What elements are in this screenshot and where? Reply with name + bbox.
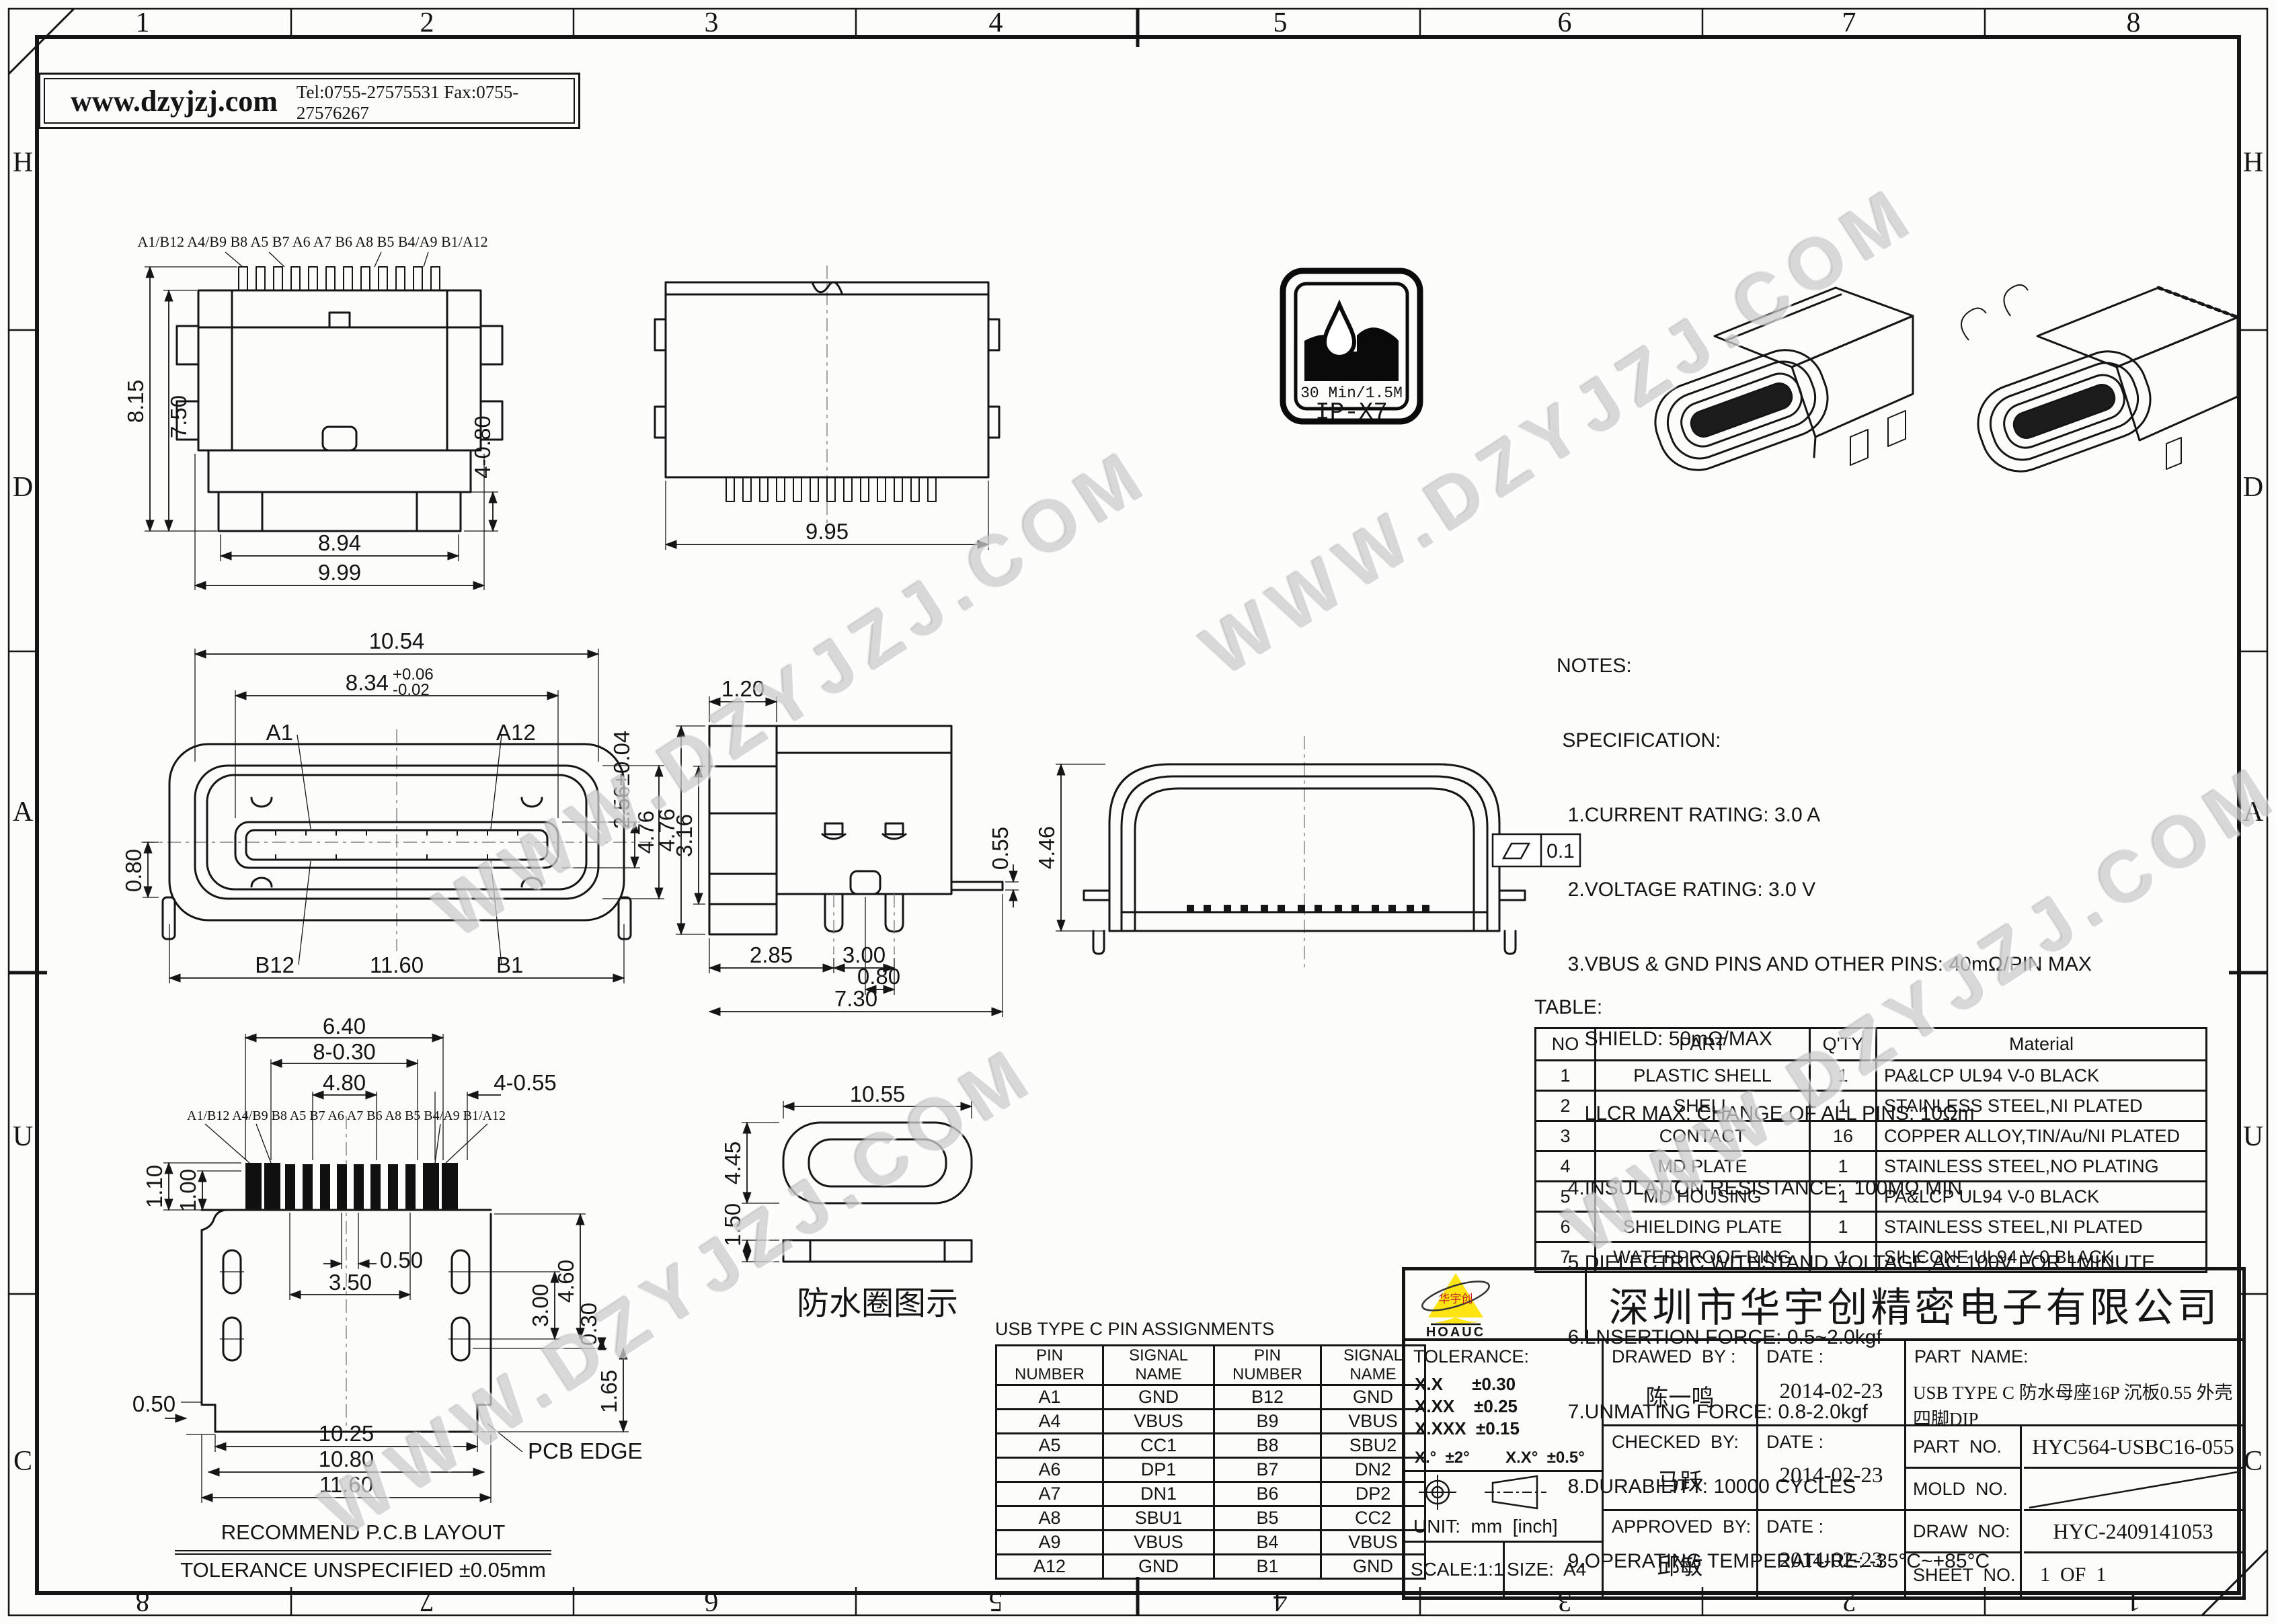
dim: 3.16	[672, 814, 697, 857]
website: www.dzyjzj.com	[71, 84, 278, 118]
view-face: A1 A12 B12 B1 10.54 8.34 +0.06 -0.02 11.…	[128, 628, 666, 995]
cell: B5	[1214, 1506, 1321, 1531]
drawing-sheet: 1 2 3 4 5 6 7 8 8 7 6 5 4 3 2 1 H D A U …	[0, 0, 2276, 1624]
front-pin-labels: A1/B12 A4/B9 B8 A5 B7 A6 A7 B6 A8 B5 B4/…	[137, 233, 487, 250]
view-side: 1.20 4.76 3.16 0.55 2.85 3.00 0.80 7.30	[662, 672, 1029, 1018]
view-pcb-bottom-dims: 10.25 10.80 11.60	[124, 1425, 709, 1512]
approved-cell: APPROVED BY: 邱敏	[1604, 1511, 1758, 1596]
zone-col: 1	[136, 7, 150, 39]
logo-cn-text: 华宇创	[1439, 1293, 1473, 1305]
part-name-label: PART NAME:	[1906, 1341, 2242, 1367]
dim: 4-0.80	[470, 415, 495, 479]
pin-a12: A12	[496, 720, 536, 745]
rear-contacts	[1187, 905, 1429, 912]
sheet-no-value: 1 OF 1	[2024, 1553, 2242, 1596]
cell: GND	[1103, 1385, 1214, 1410]
dim: 9.99	[318, 560, 361, 585]
dim: 10.55	[850, 1082, 906, 1106]
header-box: www.dzyjzj.com Tel:0755-27575531 Fax:075…	[38, 73, 580, 129]
cell: CC1	[1103, 1434, 1214, 1458]
table-row: A8SBU1 B5CC2	[996, 1506, 1425, 1531]
tel-fax: Tel:0755-27575531 Fax:0755-27576267	[297, 78, 574, 124]
zone-col: 7	[1842, 7, 1856, 39]
dim: 4.80	[323, 1070, 366, 1095]
cell: STAINLESS STEEL,NI PLATED	[1877, 1091, 2207, 1121]
zone-row: H	[2243, 147, 2263, 179]
tolerance-cell: TOLERANCE: X.X ±0.30 X.XX ±0.25 X.XXX ±0…	[1405, 1341, 1604, 1472]
cell: 3	[1536, 1121, 1596, 1151]
ring-caption: 防水圈图示	[797, 1286, 958, 1322]
dim-tol-minus: -0.02	[393, 681, 430, 699]
view-pcb: 6.40 8-0.30 4.80 4-0.55 A1/B12 A4/B9 B8 …	[124, 1028, 709, 1438]
dim: 11.60	[319, 1472, 373, 1497]
table-row: A7DN1 B6DP2	[996, 1482, 1425, 1506]
cell: PA&LCP UL94 V-0 BLACK	[1877, 1182, 2207, 1212]
col-header: NO	[1536, 1028, 1596, 1061]
tolerance-angles: X.° ±2° X.X° ±0.5°	[1405, 1439, 1602, 1467]
projection-symbol-icon	[1405, 1472, 1604, 1512]
view-rear: 4.46 0.1	[1029, 723, 1587, 988]
dim: 8.34	[346, 670, 389, 695]
ipx7-code: IP-X7	[1315, 399, 1388, 426]
dim: 0.80	[857, 964, 900, 989]
part-name-value: USB TYPE C 防水母座16P 沉板0.55 外壳四脚DIP	[1906, 1367, 2242, 1430]
cell: SBU1	[1103, 1506, 1214, 1531]
notes-line: 1.CURRENT RATING: 3.0 A	[1557, 803, 2269, 827]
tolerance-line: X.XXX ±0.15	[1405, 1417, 1602, 1439]
col-header: Q'TY	[1810, 1028, 1877, 1061]
cell: GND	[1103, 1555, 1214, 1579]
table-row: 1 PLASTIC SHELL 1 PA&LCP UL94 V-0 BLACK	[1536, 1061, 2207, 1091]
drawed-name: 陈一鸣	[1604, 1379, 1756, 1412]
cell: DP1	[1103, 1458, 1214, 1482]
pcb-caption: RECOMMEND P.C.B LAYOUT	[175, 1520, 551, 1555]
table-row: 5 MD HOUSING 1 PA&LCP UL94 V-0 BLACK	[1536, 1182, 2207, 1212]
zone-col-bottom: 5	[989, 1585, 1003, 1617]
cell: DN1	[1103, 1482, 1214, 1506]
pin-table: PIN NUMBER SIGNAL NAME PIN NUMBER SIGNAL…	[995, 1344, 1426, 1580]
dim: 3.50	[329, 1270, 372, 1295]
cell: B12	[1214, 1385, 1321, 1410]
zone-col-bottom: 7	[420, 1585, 434, 1617]
cell: A1	[996, 1385, 1103, 1410]
dim: 0.50	[380, 1248, 423, 1272]
dim: 8.94	[318, 530, 361, 555]
tolerance-line: X.X ±0.30	[1405, 1367, 1602, 1395]
size-label: SIZE: A4	[1507, 1543, 1604, 1596]
cell: A6	[996, 1458, 1103, 1482]
cell: A8	[996, 1506, 1103, 1531]
dim: 4.46	[1034, 826, 1059, 869]
dim: 2.56±0.04	[609, 731, 634, 829]
dim: 7.50	[166, 395, 191, 438]
zone-row: C	[13, 1445, 32, 1477]
ring-body	[783, 1123, 972, 1262]
tolerance-label: TOLERANCE:	[1405, 1341, 1602, 1367]
dim: 10.80	[319, 1447, 375, 1471]
cell: SHIELDING PLATE	[1596, 1212, 1810, 1242]
dim: 2.85	[750, 942, 793, 967]
cell: 1	[1810, 1091, 1877, 1121]
approved-date: 2014-02-23	[1758, 1548, 1904, 1573]
draw-no-label: DRAW NO:	[1906, 1511, 2022, 1553]
drawed-label: DRAWED BY :	[1604, 1341, 1756, 1367]
cell: 1	[1810, 1212, 1877, 1242]
part-no-value: HYC564-USBC16-055	[2024, 1426, 2242, 1469]
cell: 1	[1810, 1182, 1877, 1212]
cell: B7	[1214, 1458, 1321, 1482]
part-name-cell: PART NAME: USB TYPE C 防水母座16P 沉板0.55 外壳四…	[1906, 1341, 2242, 1426]
cell: A9	[996, 1531, 1103, 1555]
zone-col-bottom: 8	[136, 1585, 150, 1617]
table-row: 2 SHELL 1 STAINLESS STEEL,NI PLATED	[1536, 1091, 2207, 1121]
cell: B6	[1214, 1482, 1321, 1506]
date-label: DATE :	[1758, 1341, 1904, 1367]
checked-name: 马跃	[1604, 1463, 1756, 1496]
dim: 6.40	[323, 1014, 366, 1039]
dim: 10.54	[369, 628, 425, 653]
pin-a1: A1	[266, 720, 293, 745]
mold-no-value	[2024, 1469, 2242, 1511]
draw-no-value: HYC-2409141053	[2024, 1511, 2242, 1553]
cell: A12	[996, 1555, 1103, 1579]
cell: PA&LCP UL94 V-0 BLACK	[1877, 1061, 2207, 1091]
pcb-pads	[245, 1163, 458, 1210]
date-cell: DATE : 2014-02-23	[1758, 1511, 1906, 1596]
dim: 11.60	[370, 952, 424, 977]
cell: 1	[1536, 1061, 1596, 1091]
water-drop-icon	[1304, 304, 1399, 381]
cell: MD PLATE	[1596, 1151, 1810, 1182]
dim: 10.25	[319, 1421, 375, 1446]
cell: SHELL	[1596, 1091, 1810, 1121]
table-row: 3 CONTACT 16 COPPER ALLOY,TIN/Au/NI PLAT…	[1536, 1121, 2207, 1151]
parts-table-title: TABLE:	[1534, 996, 1602, 1019]
iso-connector-front	[1645, 288, 1913, 481]
zone-col: 2	[420, 7, 434, 39]
zone-col: 4	[989, 7, 1003, 39]
cell: A7	[996, 1482, 1103, 1506]
cell: COPPER ALLOY,TIN/Au/NI PLATED	[1877, 1121, 2207, 1151]
pin-b12: B12	[255, 952, 295, 977]
table-row: 6 SHIELDING PLATE 1 STAINLESS STEEL,NI P…	[1536, 1212, 2207, 1242]
iso-renders	[1614, 235, 2276, 585]
zone-col-bottom: 6	[705, 1585, 719, 1617]
table-row: A1GND B12GND	[996, 1385, 1425, 1410]
approved-name: 邱敏	[1604, 1548, 1756, 1581]
zone-row: U	[13, 1121, 33, 1153]
pin-table-title: USB TYPE C PIN ASSIGNMENTS	[995, 1319, 1274, 1340]
date-cell: DATE : 2014-02-23	[1758, 1426, 1906, 1511]
cell: 2	[1536, 1091, 1596, 1121]
cell: PLASTIC SHELL	[1596, 1061, 1810, 1091]
zone-col-bottom: 4	[1273, 1585, 1288, 1617]
tolerance-line: X.XX ±0.25	[1405, 1395, 1602, 1417]
company-logo-icon: 华宇创 HOAUC	[1405, 1270, 1587, 1338]
table-row: 4 MD PLATE 1 STAINLESS STEEL,NO PLATING	[1536, 1151, 2207, 1182]
dim: 0.80	[121, 849, 146, 892]
table-row: A5CC1 B8SBU2	[996, 1434, 1425, 1458]
col-header: PIN NUMBER	[996, 1346, 1103, 1385]
zone-row: D	[13, 471, 33, 503]
scale-label: SCALE:1:1	[1405, 1543, 1505, 1596]
cell: 1	[1810, 1061, 1877, 1091]
dim: 3.00	[528, 1284, 553, 1327]
part-no-label: PART NO.	[1906, 1426, 2022, 1469]
side-body	[709, 726, 1003, 934]
cell: B8	[1214, 1434, 1321, 1458]
cell: B9	[1214, 1410, 1321, 1434]
date-label: DATE :	[1758, 1511, 1904, 1537]
notes-line: SPECIFICATION:	[1557, 728, 2269, 753]
zone-col: 6	[1558, 7, 1572, 39]
logo-latin-text: HOAUC	[1426, 1325, 1485, 1340]
col-header: PIN NUMBER	[1214, 1346, 1321, 1385]
dim: 1.10	[142, 1165, 167, 1208]
dim: 1.00	[175, 1169, 200, 1212]
col-header: SIGNAL NAME	[1103, 1346, 1214, 1385]
dim: 8.15	[123, 380, 148, 423]
notes-line: 3.VBUS & GND PINS AND OTHER PINS: 40mΩ/P…	[1557, 952, 2269, 977]
table-row: A12GND B1GND	[996, 1555, 1425, 1579]
dim: 4.60	[553, 1260, 578, 1303]
dim: 4-0.55	[494, 1070, 557, 1095]
checked-label: CHECKED BY:	[1604, 1426, 1756, 1453]
cell: 1	[1810, 1151, 1877, 1182]
dim: 4.45	[720, 1141, 745, 1184]
cell: A4	[996, 1410, 1103, 1434]
date-cell: DATE : 2014-02-23	[1758, 1341, 1906, 1426]
cell: STAINLESS STEEL,NO PLATING	[1877, 1151, 2207, 1182]
title-block: 华宇创 HOAUC 深圳市华宇创精密电子有限公司 TOLERANCE: X.X …	[1402, 1267, 2246, 1600]
iso-connector-rear	[1961, 285, 2238, 483]
zone-row: A	[13, 796, 33, 828]
cell: VBUS	[1103, 1531, 1214, 1555]
sheet-no-label: SHEET NO.	[1906, 1553, 2022, 1596]
cell: 6	[1536, 1212, 1596, 1242]
dim: 0.50	[132, 1391, 175, 1416]
table-row: A6DP1 B7DN2	[996, 1458, 1425, 1482]
table-row: A4VBUS B9VBUS	[996, 1410, 1425, 1434]
zone-col: 8	[2127, 7, 2141, 39]
unit-label: UNIT: mm [inch]	[1405, 1516, 1602, 1537]
notes-line: 2.VOLTAGE RATING: 3.0 V	[1557, 877, 2269, 902]
mold-no-label: MOLD NO.	[1906, 1469, 2022, 1511]
front-body	[177, 290, 502, 531]
col-header: Material	[1877, 1028, 2207, 1061]
ipx7-badge: 30 Min/1.5M IP-X7	[1278, 266, 1425, 427]
cell: 16	[1810, 1121, 1877, 1151]
approved-label: APPROVED BY:	[1604, 1511, 1756, 1537]
pcb-tolerance-caption: TOLERANCE UNSPECIFIED ±0.05mm	[175, 1558, 551, 1582]
dim: 9.95	[806, 519, 849, 544]
company-name: 深圳市华宇创精密电子有限公司	[1587, 1270, 2242, 1341]
logo-cell: 华宇创 HOAUC	[1405, 1270, 1587, 1341]
dim: 7.30	[834, 986, 877, 1011]
view-front: A1/B12 A4/B9 B8 A5 B7 A6 A7 B6 A8 B5 B4/…	[124, 225, 511, 602]
view-ring: 10.55 4.45 1.50 防水圈图示	[723, 1096, 1019, 1331]
front-pins	[239, 267, 440, 290]
cell: B1	[1214, 1555, 1321, 1579]
projection-unit-cell: UNIT: mm [inch]	[1405, 1472, 1604, 1543]
cell: CONTACT	[1596, 1121, 1810, 1151]
cell: MD HOUSING	[1596, 1182, 1810, 1212]
zone-col: 3	[705, 7, 719, 39]
dim: 0.30	[576, 1303, 601, 1346]
zone-col: 5	[1273, 7, 1288, 39]
dim: 1.20	[721, 676, 764, 701]
checked-cell: CHECKED BY: 马跃	[1604, 1426, 1758, 1511]
drawed-date: 2014-02-23	[1758, 1379, 1904, 1404]
drawed-cell: DRAWED BY : 陈一鸣	[1604, 1341, 1758, 1426]
cell: 4	[1536, 1151, 1596, 1182]
header-inner: www.dzyjzj.com Tel:0755-27575531 Fax:075…	[44, 78, 575, 124]
cell: VBUS	[1103, 1410, 1214, 1434]
pcb-pin-labels: A1/B12 A4/B9 B8 A5 B7 A6 A7 B6 A8 B5 B4/…	[187, 1108, 506, 1123]
col-header: PART	[1596, 1028, 1810, 1061]
view-top: 9.95	[639, 255, 1015, 571]
cell: STAINLESS STEEL,NI PLATED	[1877, 1212, 2207, 1242]
cell: 5	[1536, 1182, 1596, 1212]
table-row: A9VBUS B4VBUS	[996, 1531, 1425, 1555]
dim: 1.50	[720, 1203, 745, 1246]
cell: B4	[1214, 1531, 1321, 1555]
dim: 1.65	[596, 1370, 621, 1413]
zone-row: H	[13, 147, 33, 179]
checked-date: 2014-02-23	[1758, 1463, 1904, 1488]
dim: 0.55	[988, 827, 1013, 870]
notes-title: NOTES:	[1557, 653, 2269, 678]
date-label: DATE :	[1758, 1426, 1904, 1453]
parts-table: NO PART Q'TY Material 1 PLASTIC SHELL 1 …	[1534, 1027, 2207, 1273]
top-teeth	[726, 477, 936, 501]
cell: A5	[996, 1434, 1103, 1458]
mold-no-slash	[2024, 1469, 2242, 1511]
dim: 8-0.30	[313, 1039, 376, 1064]
